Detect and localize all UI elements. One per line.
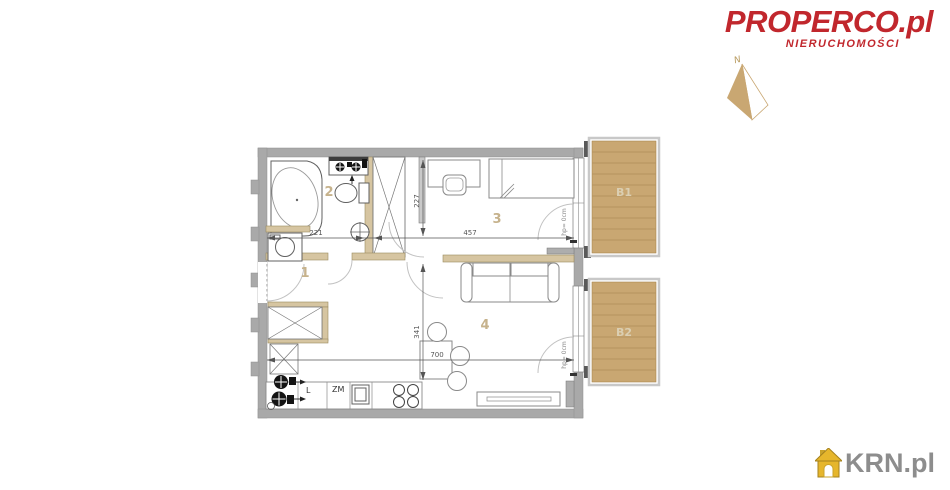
entry-door-arc — [267, 264, 304, 301]
floor-plan: B1 B2 — [0, 0, 950, 490]
toilet — [335, 183, 369, 203]
room-4-living-label: 4 — [480, 318, 489, 333]
kitchen: L ZM — [266, 375, 422, 410]
room-2-bathroom-label: 2 — [324, 185, 333, 200]
north-arrow: N — [727, 55, 768, 120]
living-room-furniture — [420, 263, 574, 407]
krn-watermark: KRN.pl — [815, 448, 935, 478]
living-opening-arc — [407, 262, 443, 298]
dim-hall-width: 221 — [309, 229, 322, 237]
bathroom-fixtures — [264, 157, 370, 261]
dim-living-depth: 341 — [413, 325, 421, 338]
door-height-notes: hp= 0cm hp= 0cm — [561, 208, 568, 369]
dim-total-width: 700 — [430, 351, 443, 359]
kitchen-sink — [352, 385, 369, 404]
bathroom-door-arc — [328, 260, 352, 284]
krn-watermark-text: KRN.pl — [845, 450, 935, 477]
balcony-2: B2 — [589, 279, 659, 385]
living-balcony-note: hp= 0cm — [561, 341, 568, 369]
bedroom-furniture — [428, 159, 574, 254]
properco-logo-text: PROPERCO.pl — [725, 6, 933, 37]
bed — [489, 159, 574, 198]
bedroom-balcony-door-arc — [538, 204, 574, 240]
balcony-1: B1 — [589, 138, 659, 256]
dim-bedroom-width: 457 — [463, 229, 476, 237]
house-icon — [815, 448, 842, 478]
dim-bedroom-depth: 227 — [413, 194, 421, 207]
properco-logo: PROPERCO.pl NIERUCHOMOŚCI — [725, 6, 933, 50]
properco-logo-subtext: NIERUCHOMOŚCI — [725, 39, 900, 50]
chair — [448, 372, 467, 391]
sofa — [461, 263, 559, 302]
fridge-label: L — [306, 386, 311, 395]
balcony-2-label: B2 — [616, 326, 632, 339]
dishwasher-label: ZM — [332, 385, 344, 394]
chair — [428, 323, 447, 342]
living-balcony-door-arc — [538, 337, 574, 373]
room-3-bedroom-label: 3 — [492, 212, 501, 227]
balcony-1-label: B1 — [616, 186, 632, 199]
radiator — [566, 381, 574, 407]
tv-stand — [477, 392, 560, 406]
bedroom-balcony-note: hp= 0cm — [561, 208, 568, 236]
north-label: N — [733, 55, 742, 66]
hall-wardrobe — [268, 302, 328, 374]
chair — [451, 347, 470, 366]
washbasin-counter — [329, 157, 368, 184]
radiator — [547, 248, 574, 254]
room-1-hall-label: 1 — [300, 266, 309, 281]
